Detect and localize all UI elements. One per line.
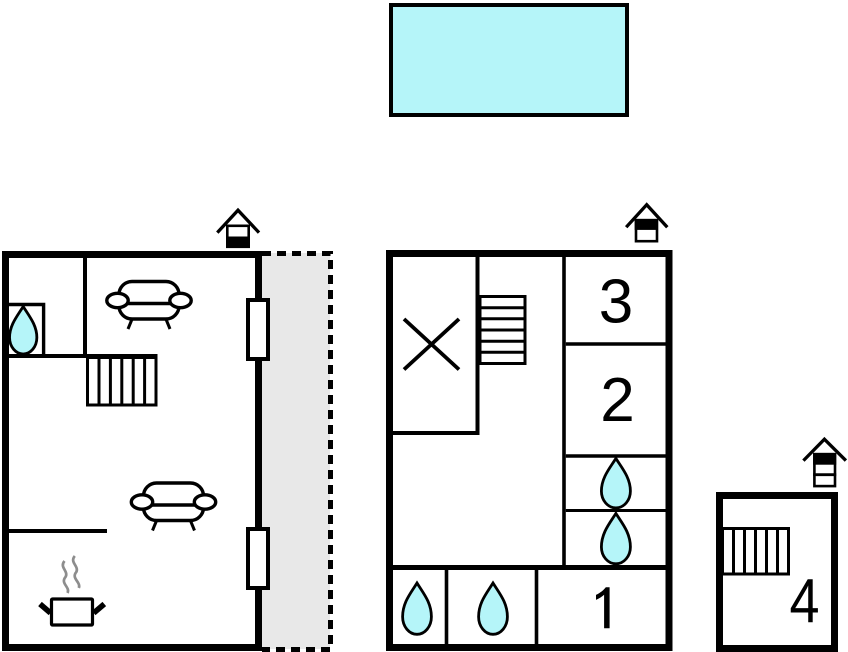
svg-text:3: 3	[599, 268, 633, 337]
svg-text:2: 2	[600, 366, 634, 435]
svg-text:4: 4	[790, 566, 820, 635]
